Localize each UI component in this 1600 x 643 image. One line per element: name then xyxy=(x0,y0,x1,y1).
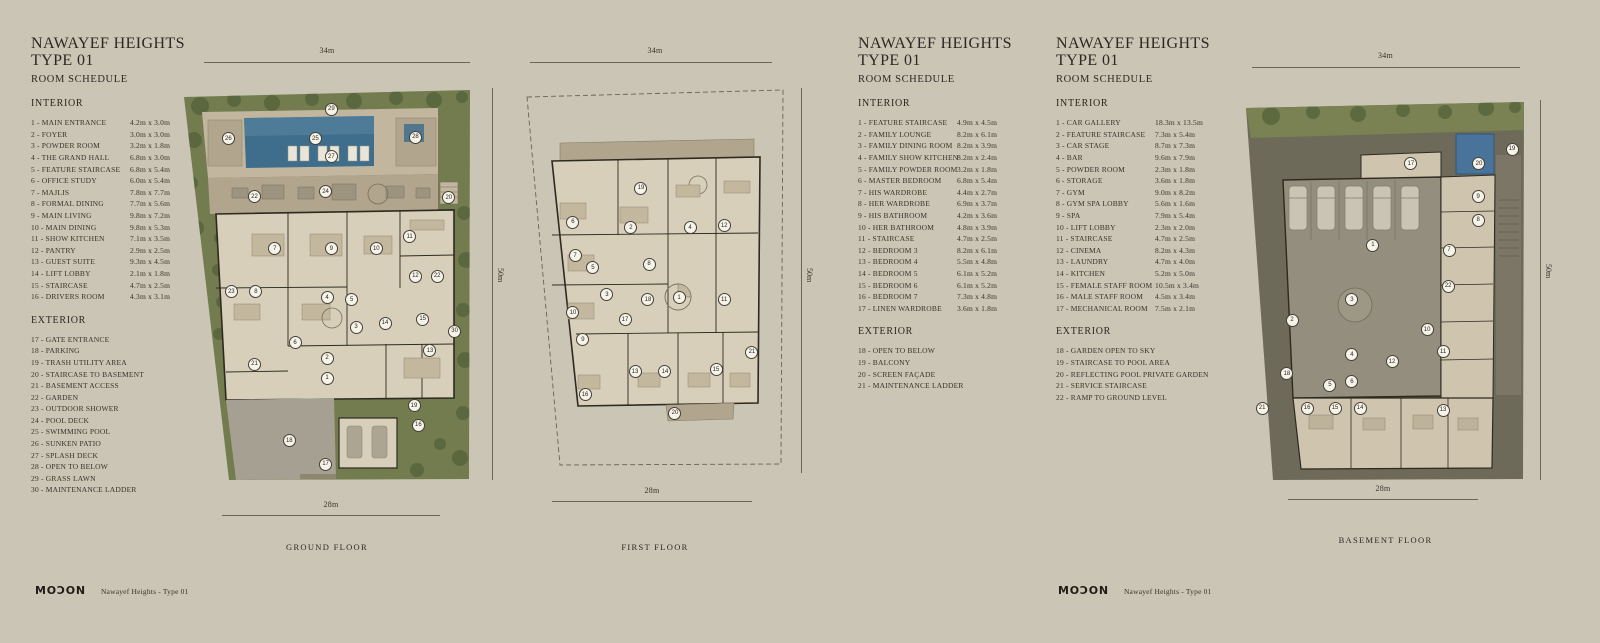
room-label: 13 - GUEST SUITE xyxy=(31,257,95,266)
exterior-list: 18 - OPEN TO BELOW19 - BALCONY20 - SCREE… xyxy=(858,345,1030,391)
room-dimensions: 6.1m x 5.2m xyxy=(957,268,997,280)
room-label: 16 - MALE STAFF ROOM xyxy=(1056,292,1143,301)
schedule-row: 25 - SWIMMING POOL xyxy=(31,426,203,438)
exterior-heading: EXTERIOR xyxy=(858,326,1030,337)
schedule-row: 1 - CAR GALLERY18.3m x 13.5m xyxy=(1056,117,1228,129)
interior-list: 1 - FEATURE STAIRCASE4.9m x 4.5m2 - FAMI… xyxy=(858,117,1030,314)
room-dimensions: 3.0m x 3.0m xyxy=(130,129,170,141)
schedule-row: 17 - MECHANICAL ROOM7.5m x 2.1m xyxy=(1056,303,1228,315)
room-dimensions: 2.3m x 2.0m xyxy=(1155,222,1195,234)
schedule-row: 29 - GRASS LAWN xyxy=(31,473,203,485)
schedule-row: 18 - OPEN TO BELOW xyxy=(858,345,1030,357)
basement-dim-top-line xyxy=(1252,67,1520,68)
room-marker: 18 xyxy=(641,293,654,306)
room-dimensions: 4.8m x 3.9m xyxy=(957,222,997,234)
first-dim-bottom-line xyxy=(552,501,752,502)
schedule-row: 4 - THE GRAND HALL6.8m x 3.0m xyxy=(31,152,203,164)
schedule-row: 12 - CINEMA8.2m x 4.3m xyxy=(1056,245,1228,257)
footer-left: MOƆON Nawayef Heights - Type 01 xyxy=(35,584,189,597)
room-dimensions: 9.6m x 7.9m xyxy=(1155,152,1195,164)
footer-label: Nawayef Heights - Type 01 xyxy=(101,587,189,596)
project-title-line1: NAWAYEF HEIGHTS xyxy=(858,36,1030,53)
room-label: 19 - BALCONY xyxy=(858,358,910,367)
room-dimensions: 9.8m x 5.3m xyxy=(130,222,170,234)
room-marker: 15 xyxy=(710,363,723,376)
room-marker: 5 xyxy=(1323,379,1336,392)
room-marker: 20 xyxy=(442,191,455,204)
room-label: 17 - MECHANICAL ROOM xyxy=(1056,304,1148,313)
schedule-row: 14 - BEDROOM 56.1m x 5.2m xyxy=(858,268,1030,280)
room-dimensions: 4.2m x 3.6m xyxy=(957,210,997,222)
room-label: 21 - MAINTENANCE LADDER xyxy=(858,381,964,390)
room-marker: 21 xyxy=(1256,402,1269,415)
room-marker: 21 xyxy=(745,346,758,359)
room-dimensions: 4.2m x 3.0m xyxy=(130,117,170,129)
schedule-row: 17 - LINEN WARDROBE3.6m x 1.8m xyxy=(858,303,1030,315)
room-marker: 30 xyxy=(448,325,461,338)
room-label: 17 - GATE ENTRANCE xyxy=(31,335,109,344)
room-marker: 9 xyxy=(576,333,589,346)
room-dimensions: 2.3m x 1.8m xyxy=(1155,164,1195,176)
room-label: 21 - SERVICE STAIRCASE xyxy=(1056,381,1147,390)
basement-dim-right: 50m xyxy=(1544,264,1553,278)
room-dimensions: 4.7m x 2.5m xyxy=(130,280,170,292)
room-marker: 17 xyxy=(319,458,332,471)
room-dimensions: 9.0m x 8.2m xyxy=(1155,187,1195,199)
room-label: 3 - CAR STAGE xyxy=(1056,141,1109,150)
room-label: 28 - OPEN TO BELOW xyxy=(31,462,108,471)
schedule-row: 17 - GATE ENTRANCE xyxy=(31,334,203,346)
room-label: 18 - GARDEN OPEN TO SKY xyxy=(1056,346,1156,355)
basement-floor-plan: 19172098172232101141218652116151413 xyxy=(1243,100,1528,480)
room-dimensions: 3.6m x 1.8m xyxy=(1155,175,1195,187)
room-label: 1 - MAIN ENTRANCE xyxy=(31,118,106,127)
room-label: 26 - SUNKEN PATIO xyxy=(31,439,101,448)
room-dimensions: 6.8m x 5.4m xyxy=(957,175,997,187)
room-label: 24 - POOL DECK xyxy=(31,416,89,425)
room-label: 12 - PANTRY xyxy=(31,246,76,255)
room-marker: 16 xyxy=(579,388,592,401)
modon-logo: MOƆON xyxy=(35,584,86,597)
room-dimensions: 6.1m x 5.2m xyxy=(957,280,997,292)
room-marker: 28 xyxy=(409,131,422,144)
schedule-row: 16 - MALE STAFF ROOM4.5m x 3.4m xyxy=(1056,291,1228,303)
brochure-sheet: NAWAYEF HEIGHTS TYPE 01 ROOM SCHEDULE IN… xyxy=(0,0,1600,643)
ground-dim-top-line xyxy=(204,62,470,63)
schedule-row: 11 - SHOW KITCHEN7.1m x 3.5m xyxy=(31,233,203,245)
interior-heading: INTERIOR xyxy=(858,98,1030,109)
room-label: 2 - FOYER xyxy=(31,130,67,139)
room-label: 11 - SHOW KITCHEN xyxy=(31,234,105,243)
schedule-row: 2 - FEATURE STAIRCASE7.3m x 5.4m xyxy=(1056,129,1228,141)
basement-dim-right-line xyxy=(1540,100,1541,480)
room-label: 15 - STAIRCASE xyxy=(31,281,88,290)
schedule-row: 7 - GYM9.0m x 8.2m xyxy=(1056,187,1228,199)
room-label: 15 - FEMALE STAFF ROOM xyxy=(1056,281,1152,290)
room-marker: 26 xyxy=(222,132,235,145)
room-label: 10 - HER BATHROOM xyxy=(858,223,934,232)
room-label: 2 - FAMILY LOUNGE xyxy=(858,130,931,139)
room-marker: 8 xyxy=(1472,214,1485,227)
schedule-row: 22 - RAMP TO GROUND LEVEL xyxy=(1056,392,1228,404)
room-dimensions: 4.7m x 4.0m xyxy=(1155,256,1195,268)
schedule-row: 27 - SPLASH DECK xyxy=(31,450,203,462)
room-dimensions: 3.6m x 1.8m xyxy=(957,303,997,315)
schedule-row: 15 - FEMALE STAFF ROOM10.5m x 3.4m xyxy=(1056,280,1228,292)
exterior-list: 18 - GARDEN OPEN TO SKY19 - STAIRCASE TO… xyxy=(1056,345,1228,403)
room-dimensions: 7.9m x 5.4m xyxy=(1155,210,1195,222)
first-dim-right-line xyxy=(801,88,802,473)
room-dimensions: 9.3m x 4.5m xyxy=(130,256,170,268)
room-dimensions: 8.7m x 7.3m xyxy=(1155,140,1195,152)
room-label: 13 - LAUNDRY xyxy=(1056,257,1108,266)
room-marker: 14 xyxy=(658,365,671,378)
sheet-subtitle: ROOM SCHEDULE xyxy=(31,73,203,87)
room-label: 18 - PARKING xyxy=(31,346,80,355)
room-label: 9 - SPA xyxy=(1056,211,1080,220)
room-label: 11 - STAIRCASE xyxy=(858,234,915,243)
room-label: 17 - LINEN WARDROBE xyxy=(858,304,942,313)
room-dimensions: 7.3m x 4.8m xyxy=(957,291,997,303)
room-marker: 27 xyxy=(325,150,338,163)
schedule-row: 11 - STAIRCASE4.7m x 2.5m xyxy=(1056,233,1228,245)
basement-dim-bottom: 28m xyxy=(1288,484,1478,493)
schedule-row: 16 - DRIVERS ROOM4.3m x 3.1m xyxy=(31,291,203,303)
room-schedule-ground: NAWAYEF HEIGHTS TYPE 01 ROOM SCHEDULE IN… xyxy=(31,36,203,496)
room-dimensions: 4.9m x 4.5m xyxy=(957,117,997,129)
schedule-row: 5 - POWDER ROOM2.3m x 1.8m xyxy=(1056,164,1228,176)
schedule-row: 15 - BEDROOM 66.1m x 5.2m xyxy=(858,280,1030,292)
room-marker: 3 xyxy=(600,288,613,301)
footer-right: MOƆON Nawayef Heights - Type 01 xyxy=(1058,584,1212,597)
project-title-line2: TYPE 01 xyxy=(858,53,1030,70)
schedule-row: 20 - STAIRCASE TO BASEMENT xyxy=(31,369,203,381)
room-dimensions: 6.0m x 5.4m xyxy=(130,175,170,187)
room-label: 16 - DRIVERS ROOM xyxy=(31,292,105,301)
room-dimensions: 4.4m x 2.7m xyxy=(957,187,997,199)
room-marker: 1 xyxy=(321,372,334,385)
room-label: 22 - GARDEN xyxy=(31,393,78,402)
first-dim-right: 50m xyxy=(805,268,814,282)
room-marker: 7 xyxy=(268,242,281,255)
room-marker: 6 xyxy=(566,216,579,229)
schedule-row: 22 - GARDEN xyxy=(31,392,203,404)
room-label: 9 - HIS BATHROOM xyxy=(858,211,927,220)
room-marker: 23 xyxy=(225,285,238,298)
exterior-heading: EXTERIOR xyxy=(31,315,203,326)
schedule-row: 8 - FORMAL DINING7.7m x 5.6m xyxy=(31,198,203,210)
room-label: 4 - BAR xyxy=(1056,153,1083,162)
room-marker: 2 xyxy=(321,352,334,365)
room-marker: 11 xyxy=(718,293,731,306)
room-label: 10 - LIFT LOBBY xyxy=(1056,223,1116,232)
schedule-row: 11 - STAIRCASE4.7m x 2.5m xyxy=(858,233,1030,245)
room-marker: 20 xyxy=(668,407,681,420)
schedule-row: 6 - OFFICE STUDY6.0m x 5.4m xyxy=(31,175,203,187)
room-label: 21 - BASEMENT ACCESS xyxy=(31,381,119,390)
schedule-row: 7 - MAJLIS7.8m x 7.7m xyxy=(31,187,203,199)
schedule-row: 14 - KITCHEN5.2m x 5.0m xyxy=(1056,268,1228,280)
room-dimensions: 7.3m x 5.4m xyxy=(1155,129,1195,141)
room-marker: 4 xyxy=(684,221,697,234)
room-marker: 12 xyxy=(409,270,422,283)
modon-logo: MOƆON xyxy=(1058,584,1109,597)
room-label: 11 - STAIRCASE xyxy=(1056,234,1113,243)
room-schedule-basement: NAWAYEF HEIGHTS TYPE 01 ROOM SCHEDULE IN… xyxy=(1056,36,1228,403)
room-label: 15 - BEDROOM 6 xyxy=(858,281,918,290)
room-marker: 1 xyxy=(673,291,686,304)
ground-dim-bottom: 28m xyxy=(222,500,440,509)
room-dimensions: 7.8m x 7.7m xyxy=(130,187,170,199)
room-label: 12 - CINEMA xyxy=(1056,246,1102,255)
room-marker: 22 xyxy=(1442,280,1455,293)
room-dimensions: 2.9m x 2.5m xyxy=(130,245,170,257)
schedule-row: 9 - HIS BATHROOM4.2m x 3.6m xyxy=(858,210,1030,222)
room-label: 14 - LIFT LOBBY xyxy=(31,269,91,278)
room-marker: 5 xyxy=(586,261,599,274)
room-label: 20 - SCREEN FAÇADE xyxy=(858,370,935,379)
room-marker: 17 xyxy=(619,313,632,326)
room-label: 18 - OPEN TO BELOW xyxy=(858,346,935,355)
room-marker: 13 xyxy=(423,344,436,357)
schedule-row: 19 - TRASH UTILITY AREA xyxy=(31,357,203,369)
room-dimensions: 8.2m x 4.3m xyxy=(1155,245,1195,257)
room-label: 20 - STAIRCASE TO BASEMENT xyxy=(31,370,144,379)
room-label: 27 - SPLASH DECK xyxy=(31,451,98,460)
room-marker: 17 xyxy=(1404,157,1417,170)
room-dimensions: 8.2m x 6.1m xyxy=(957,245,997,257)
project-title-line1: NAWAYEF HEIGHTS xyxy=(1056,36,1228,53)
room-label: 3 - POWDER ROOM xyxy=(31,141,100,150)
schedule-row: 3 - CAR STAGE8.7m x 7.3m xyxy=(1056,140,1228,152)
room-marker: 14 xyxy=(1354,402,1367,415)
room-dimensions: 7.5m x 2.1m xyxy=(1155,303,1195,315)
room-dimensions: 6.9m x 3.7m xyxy=(957,198,997,210)
interior-list: 1 - CAR GALLERY18.3m x 13.5m2 - FEATURE … xyxy=(1056,117,1228,314)
schedule-row: 10 - LIFT LOBBY2.3m x 2.0m xyxy=(1056,222,1228,234)
room-dimensions: 5.6m x 1.6m xyxy=(1155,198,1195,210)
room-label: 14 - KITCHEN xyxy=(1056,269,1105,278)
schedule-row: 19 - BALCONY xyxy=(858,357,1030,369)
room-marker: 18 xyxy=(1280,367,1293,380)
room-label: 6 - STORAGE xyxy=(1056,176,1103,185)
room-marker: 2 xyxy=(1286,314,1299,327)
room-dimensions: 5.5m x 4.8m xyxy=(957,256,997,268)
schedule-row: 21 - BASEMENT ACCESS xyxy=(31,380,203,392)
schedule-row: 10 - HER BATHROOM4.8m x 3.9m xyxy=(858,222,1030,234)
schedule-row: 3 - FAMILY DINING ROOM8.2m x 3.9m xyxy=(858,140,1030,152)
project-title-line2: TYPE 01 xyxy=(1056,53,1228,70)
room-marker: 12 xyxy=(718,219,731,232)
schedule-row: 13 - LAUNDRY4.7m x 4.0m xyxy=(1056,256,1228,268)
schedule-row: 12 - PANTRY2.9m x 2.5m xyxy=(31,245,203,257)
room-label: 20 - REFLECTING POOL PRIVATE GARDEN xyxy=(1056,370,1209,379)
schedule-row: 3 - POWDER ROOM3.2m x 1.8m xyxy=(31,140,203,152)
schedule-row: 8 - HER WARDROBE6.9m x 3.7m xyxy=(858,198,1030,210)
room-marker: 13 xyxy=(1437,404,1450,417)
room-marker: 4 xyxy=(1345,348,1358,361)
room-marker: 20 xyxy=(1472,157,1485,170)
schedule-row: 5 - FAMILY POWDER ROOM3.2m x 1.8m xyxy=(858,164,1030,176)
room-marker: 8 xyxy=(249,285,262,298)
ground-dim-bottom-line xyxy=(222,515,440,516)
schedule-row: 21 - SERVICE STAIRCASE xyxy=(1056,380,1228,392)
room-label: 29 - GRASS LAWN xyxy=(31,474,96,483)
room-label: 8 - GYM SPA LOBBY xyxy=(1056,199,1129,208)
ground-marker-layer: 2926252728222420791011122223845153146132… xyxy=(182,88,472,480)
schedule-row: 9 - SPA7.9m x 5.4m xyxy=(1056,210,1228,222)
room-marker: 10 xyxy=(370,242,383,255)
room-marker: 7 xyxy=(1443,244,1456,257)
schedule-row: 4 - BAR9.6m x 7.9m xyxy=(1056,152,1228,164)
first-floor-plan: 196241275831811110179211314151620 xyxy=(520,85,790,470)
schedule-row: 6 - MASTER BEDROOM6.8m x 5.4m xyxy=(858,175,1030,187)
room-marker: 29 xyxy=(325,103,338,116)
room-marker: 12 xyxy=(1386,355,1399,368)
project-title-line1: NAWAYEF HEIGHTS xyxy=(31,36,203,53)
room-dimensions: 8.2m x 6.1m xyxy=(957,129,997,141)
schedule-row: 23 - OUTDOOR SHOWER xyxy=(31,403,203,415)
room-label: 16 - BEDROOM 7 xyxy=(858,292,918,301)
room-marker: 9 xyxy=(1472,190,1485,203)
schedule-row: 4 - FAMILY SHOW KITCHEN8.2m x 2.4m xyxy=(858,152,1030,164)
room-dimensions: 6.8m x 5.4m xyxy=(130,164,170,176)
schedule-row: 20 - REFLECTING POOL PRIVATE GARDEN xyxy=(1056,369,1228,381)
room-label: 4 - FAMILY SHOW KITCHEN xyxy=(858,153,958,162)
sheet-subtitle: ROOM SCHEDULE xyxy=(1056,73,1228,87)
schedule-row: 13 - GUEST SUITE9.3m x 4.5m xyxy=(31,256,203,268)
schedule-row: 6 - STORAGE3.6m x 1.8m xyxy=(1056,175,1228,187)
room-label: 7 - MAJLIS xyxy=(31,188,69,197)
first-dim-top: 34m xyxy=(520,46,790,55)
room-marker: 3 xyxy=(350,321,363,334)
room-marker: 14 xyxy=(379,317,392,330)
basement-floor-caption: BASEMENT FLOOR xyxy=(1243,535,1528,545)
schedule-row: 5 - FEATURE STAIRCASE6.8m x 5.4m xyxy=(31,164,203,176)
schedule-row: 20 - SCREEN FAÇADE xyxy=(858,369,1030,381)
room-marker: 10 xyxy=(1421,323,1434,336)
room-label: 5 - POWDER ROOM xyxy=(1056,165,1125,174)
basement-dim-bottom-line xyxy=(1288,499,1478,500)
room-marker: 19 xyxy=(408,399,421,412)
room-marker: 24 xyxy=(319,185,332,198)
basement-marker-layer: 19172098172232101141218652116151413 xyxy=(1243,100,1528,480)
room-marker: 21 xyxy=(248,358,261,371)
room-dimensions: 7.1m x 3.5m xyxy=(130,233,170,245)
schedule-row: 18 - GARDEN OPEN TO SKY xyxy=(1056,345,1228,357)
first-marker-layer: 196241275831811110179211314151620 xyxy=(520,85,790,470)
room-label: 19 - TRASH UTILITY AREA xyxy=(31,358,127,367)
first-floor-caption: FIRST FLOOR xyxy=(520,542,790,552)
schedule-row: 10 - MAIN DINING9.8m x 5.3m xyxy=(31,222,203,234)
room-dimensions: 8.2m x 2.4m xyxy=(957,152,997,164)
first-dim-top-line xyxy=(530,62,772,63)
room-dimensions: 18.3m x 13.5m xyxy=(1155,117,1203,129)
room-label: 25 - SWIMMING POOL xyxy=(31,427,110,436)
room-label: 4 - THE GRAND HALL xyxy=(31,153,109,162)
sheet-subtitle: ROOM SCHEDULE xyxy=(858,73,1030,87)
schedule-row: 18 - PARKING xyxy=(31,345,203,357)
schedule-row: 9 - MAIN LIVING9.8m x 7.2m xyxy=(31,210,203,222)
ground-dim-right: 50m xyxy=(496,268,505,282)
schedule-row: 24 - POOL DECK xyxy=(31,415,203,427)
ground-dim-top: 34m xyxy=(182,46,472,55)
room-marker: 9 xyxy=(325,242,338,255)
room-marker: 6 xyxy=(1345,375,1358,388)
room-marker: 11 xyxy=(403,230,416,243)
ground-dim-right-line xyxy=(492,88,493,480)
room-label: 1 - CAR GALLERY xyxy=(1056,118,1121,127)
schedule-row: 28 - OPEN TO BELOW xyxy=(31,461,203,473)
schedule-row: 15 - STAIRCASE4.7m x 2.5m xyxy=(31,280,203,292)
room-marker: 13 xyxy=(629,365,642,378)
room-marker: 7 xyxy=(569,249,582,262)
project-title-line2: TYPE 01 xyxy=(31,53,203,70)
room-label: 5 - FEATURE STAIRCASE xyxy=(31,165,120,174)
room-label: 2 - FEATURE STAIRCASE xyxy=(1056,130,1145,139)
schedule-row: 1 - MAIN ENTRANCE4.2m x 3.0m xyxy=(31,117,203,129)
room-label: 1 - FEATURE STAIRCASE xyxy=(858,118,947,127)
first-dim-bottom: 28m xyxy=(552,486,752,495)
schedule-row: 7 - HIS WARDROBE4.4m x 2.7m xyxy=(858,187,1030,199)
room-label: 8 - HER WARDROBE xyxy=(858,199,930,208)
room-label: 30 - MAINTENANCE LADDER xyxy=(31,485,137,494)
schedule-row: 30 - MAINTENANCE LADDER xyxy=(31,484,203,496)
schedule-row: 26 - SUNKEN PATIO xyxy=(31,438,203,450)
room-dimensions: 3.2m x 1.8m xyxy=(130,140,170,152)
room-label: 10 - MAIN DINING xyxy=(31,223,96,232)
room-dimensions: 3.2m x 1.8m xyxy=(957,164,997,176)
room-label: 3 - FAMILY DINING ROOM xyxy=(858,141,952,150)
room-marker: 1 xyxy=(1366,239,1379,252)
room-dimensions: 4.5m x 3.4m xyxy=(1155,291,1195,303)
room-label: 12 - BEDROOM 3 xyxy=(858,246,918,255)
basement-dim-top: 34m xyxy=(1243,51,1528,60)
room-label: 5 - FAMILY POWDER ROOM xyxy=(858,165,957,174)
room-marker: 25 xyxy=(309,132,322,145)
schedule-row: 19 - STAIRCASE TO POOL AREA xyxy=(1056,357,1228,369)
room-label: 22 - RAMP TO GROUND LEVEL xyxy=(1056,393,1167,402)
room-marker: 15 xyxy=(416,313,429,326)
schedule-row: 2 - FAMILY LOUNGE8.2m x 6.1m xyxy=(858,129,1030,141)
exterior-heading: EXTERIOR xyxy=(1056,326,1228,337)
schedule-row: 12 - BEDROOM 38.2m x 6.1m xyxy=(858,245,1030,257)
room-marker: 4 xyxy=(321,291,334,304)
schedule-row: 13 - BEDROOM 45.5m x 4.8m xyxy=(858,256,1030,268)
schedule-row: 14 - LIFT LOBBY2.1m x 1.8m xyxy=(31,268,203,280)
room-marker: 18 xyxy=(283,434,296,447)
schedule-row: 8 - GYM SPA LOBBY5.6m x 1.6m xyxy=(1056,198,1228,210)
room-marker: 16 xyxy=(1301,402,1314,415)
room-schedule-first: NAWAYEF HEIGHTS TYPE 01 ROOM SCHEDULE IN… xyxy=(858,36,1030,392)
room-marker: 3 xyxy=(1345,293,1358,306)
room-marker: 5 xyxy=(345,293,358,306)
ground-floor-plan: 2926252728222420791011122223845153146132… xyxy=(182,88,472,480)
room-label: 14 - BEDROOM 5 xyxy=(858,269,918,278)
room-dimensions: 10.5m x 3.4m xyxy=(1155,280,1199,292)
room-label: 8 - FORMAL DINING xyxy=(31,199,104,208)
room-dimensions: 4.7m x 2.5m xyxy=(1155,233,1195,245)
room-dimensions: 5.2m x 5.0m xyxy=(1155,268,1195,280)
schedule-row: 16 - BEDROOM 77.3m x 4.8m xyxy=(858,291,1030,303)
room-marker: 10 xyxy=(566,306,579,319)
schedule-row: 2 - FOYER3.0m x 3.0m xyxy=(31,129,203,141)
room-label: 6 - MASTER BEDROOM xyxy=(858,176,941,185)
room-label: 6 - OFFICE STUDY xyxy=(31,176,97,185)
interior-heading: INTERIOR xyxy=(31,98,203,109)
room-dimensions: 7.7m x 5.6m xyxy=(130,198,170,210)
room-label: 7 - GYM xyxy=(1056,188,1085,197)
